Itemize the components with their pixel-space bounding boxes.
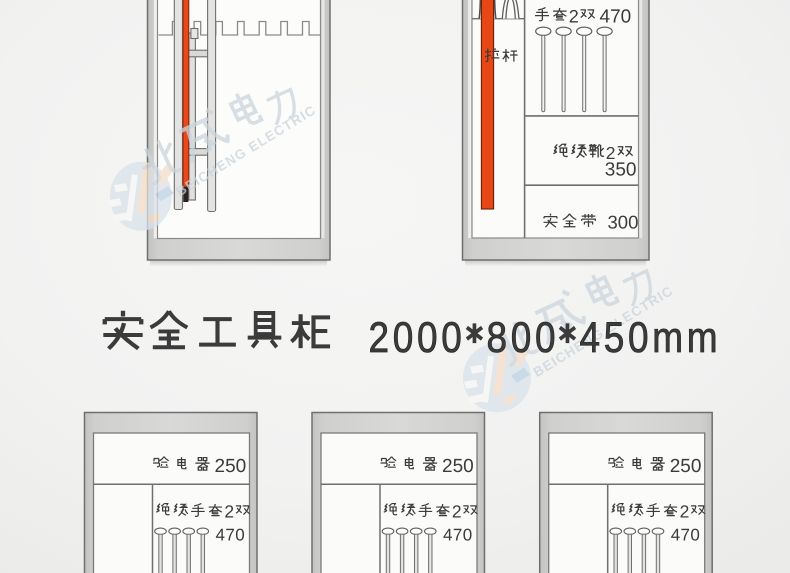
svg-text:450mm: 450mm: [580, 314, 722, 362]
svg-text:350: 350: [605, 159, 637, 180]
svg-text:300: 300: [608, 212, 639, 233]
svg-text:470: 470: [600, 7, 632, 28]
svg-text:2000: 2000: [369, 314, 466, 362]
svg-text:2: 2: [569, 6, 579, 26]
svg-text:800: 800: [487, 314, 560, 362]
